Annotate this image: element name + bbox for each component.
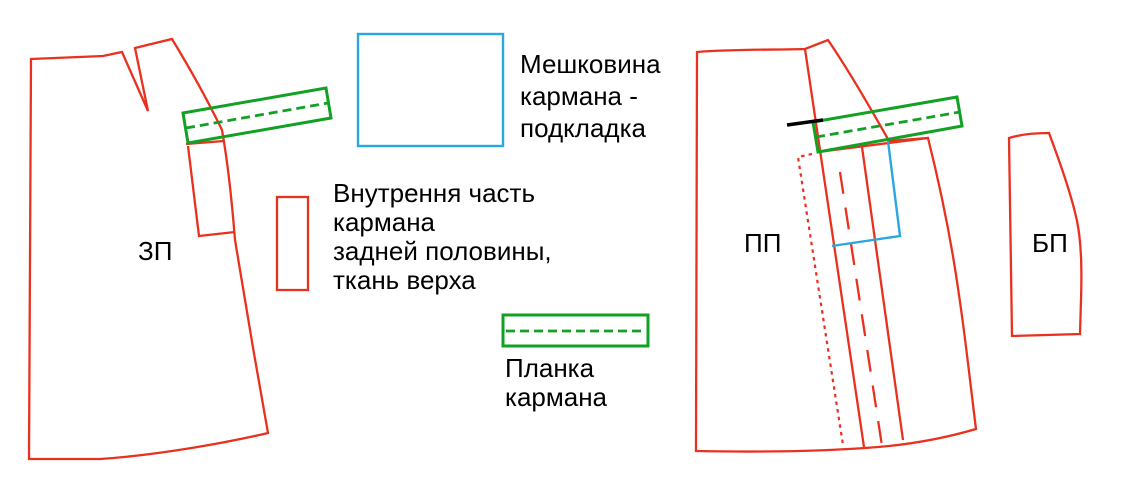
- front-piece-label: ПП: [744, 230, 781, 256]
- placket-swatch: [503, 315, 648, 346]
- front-fly-dash-line: [840, 172, 882, 446]
- inner-pocket-swatch: [277, 197, 308, 290]
- front-placket-stitch-line: [816, 112, 960, 137]
- sewing-pattern-diagram: Мешковина кармана - подкладка Внутрення …: [0, 0, 1145, 479]
- back-placket-stitch-line: [186, 103, 328, 128]
- side-piece-label: БП: [1032, 230, 1068, 256]
- inner-pocket-label: Внутрення часть кармана задней половины,…: [333, 179, 552, 295]
- notch-mark: [787, 120, 823, 125]
- placket-label: Планка кармана: [505, 354, 607, 412]
- front-band-line-right: [862, 147, 903, 440]
- front-half-piece: [696, 40, 976, 452]
- back-inner-pocket-lines: [188, 146, 235, 236]
- front-fold-dotted-line: [798, 154, 843, 445]
- back-piece-label: ЗП: [138, 238, 172, 264]
- pocket-bag-swatch: [358, 34, 503, 146]
- pocket-bag-label: Мешковина кармана - подкладка: [520, 48, 661, 144]
- back-half-piece: [29, 39, 331, 459]
